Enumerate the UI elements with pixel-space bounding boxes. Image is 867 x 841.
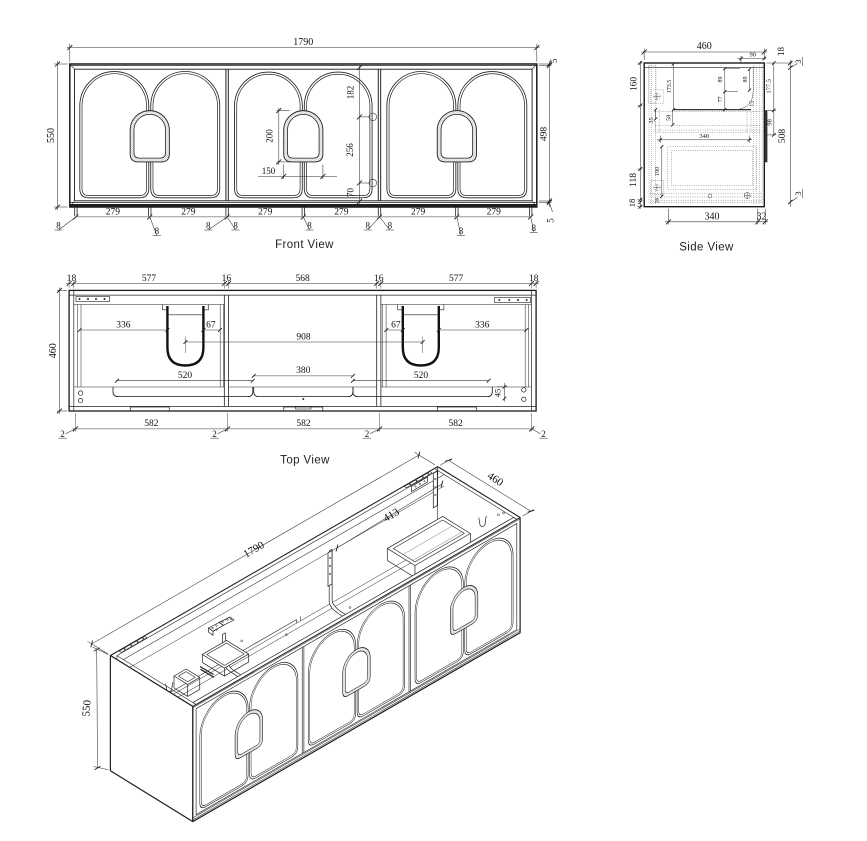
svg-text:279: 279 xyxy=(181,207,196,217)
svg-text:8: 8 xyxy=(56,221,61,231)
svg-text:582: 582 xyxy=(296,419,311,429)
svg-text:18: 18 xyxy=(529,274,539,284)
svg-text:256: 256 xyxy=(345,143,355,157)
svg-text:279: 279 xyxy=(487,207,502,217)
svg-text:3: 3 xyxy=(793,59,803,63)
svg-text:908: 908 xyxy=(296,333,311,343)
svg-text:5: 5 xyxy=(549,58,559,63)
svg-text:150: 150 xyxy=(262,166,276,176)
svg-text:67: 67 xyxy=(391,321,401,331)
svg-text:577: 577 xyxy=(142,274,157,284)
svg-text:32: 32 xyxy=(757,211,767,222)
svg-text:279: 279 xyxy=(258,207,273,217)
svg-text:340: 340 xyxy=(705,211,720,222)
svg-text:279: 279 xyxy=(334,207,349,217)
svg-text:2: 2 xyxy=(541,429,546,439)
svg-text:460: 460 xyxy=(697,41,712,52)
svg-text:8: 8 xyxy=(532,223,537,233)
svg-text:16: 16 xyxy=(222,274,232,284)
svg-text:582: 582 xyxy=(144,419,159,429)
svg-text:508: 508 xyxy=(778,129,788,144)
svg-text:8: 8 xyxy=(206,221,211,231)
svg-text:118: 118 xyxy=(629,173,639,187)
svg-text:89: 89 xyxy=(743,77,749,83)
svg-text:200: 200 xyxy=(265,129,275,143)
svg-text:45: 45 xyxy=(493,389,503,398)
svg-text:279: 279 xyxy=(106,207,121,217)
svg-text:568: 568 xyxy=(295,274,310,284)
svg-text:550: 550 xyxy=(46,128,57,143)
svg-text:279: 279 xyxy=(411,207,426,217)
svg-text:498: 498 xyxy=(539,127,549,142)
svg-text:Side View: Side View xyxy=(679,242,734,254)
svg-text:173.5: 173.5 xyxy=(667,80,673,94)
svg-text:336: 336 xyxy=(475,321,490,331)
svg-text:340: 340 xyxy=(699,133,709,140)
svg-text:3: 3 xyxy=(793,191,803,195)
svg-text:182: 182 xyxy=(346,86,356,100)
svg-text:160: 160 xyxy=(630,77,640,92)
svg-text:18: 18 xyxy=(67,274,77,284)
svg-text:Front View: Front View xyxy=(275,239,334,251)
svg-text:35: 35 xyxy=(649,118,655,124)
svg-text:Top View: Top View xyxy=(280,455,330,467)
svg-text:460: 460 xyxy=(48,343,59,358)
svg-text:8: 8 xyxy=(365,221,370,231)
svg-text:8: 8 xyxy=(459,226,464,236)
svg-text:90: 90 xyxy=(750,52,757,59)
svg-text:70: 70 xyxy=(346,188,356,198)
svg-text:98: 98 xyxy=(766,119,773,126)
svg-text:58: 58 xyxy=(666,115,672,121)
svg-text:336: 336 xyxy=(116,321,131,331)
svg-text:16: 16 xyxy=(374,274,384,284)
svg-text:520: 520 xyxy=(178,371,193,381)
svg-text:2: 2 xyxy=(212,429,217,439)
svg-text:67: 67 xyxy=(206,321,216,331)
svg-text:2: 2 xyxy=(365,429,370,439)
svg-text:8: 8 xyxy=(307,221,312,231)
svg-text:5: 5 xyxy=(546,218,556,223)
svg-text:190: 190 xyxy=(655,167,661,176)
svg-text:8: 8 xyxy=(155,226,160,236)
svg-text:18: 18 xyxy=(776,47,786,57)
svg-text:15: 15 xyxy=(750,101,756,107)
svg-text:8: 8 xyxy=(388,221,393,231)
svg-text:520: 520 xyxy=(414,371,429,381)
svg-text:26: 26 xyxy=(655,198,661,204)
svg-text:2: 2 xyxy=(60,429,65,439)
svg-text:18: 18 xyxy=(627,199,637,208)
svg-text:8: 8 xyxy=(233,221,238,231)
svg-text:380: 380 xyxy=(296,366,311,376)
svg-text:582: 582 xyxy=(448,419,463,429)
svg-text:89: 89 xyxy=(718,77,724,83)
svg-text:577: 577 xyxy=(449,274,464,284)
svg-text:550: 550 xyxy=(80,699,93,717)
svg-text:1790: 1790 xyxy=(293,37,313,48)
svg-text:77: 77 xyxy=(718,97,724,103)
svg-text:177.5: 177.5 xyxy=(766,79,773,94)
